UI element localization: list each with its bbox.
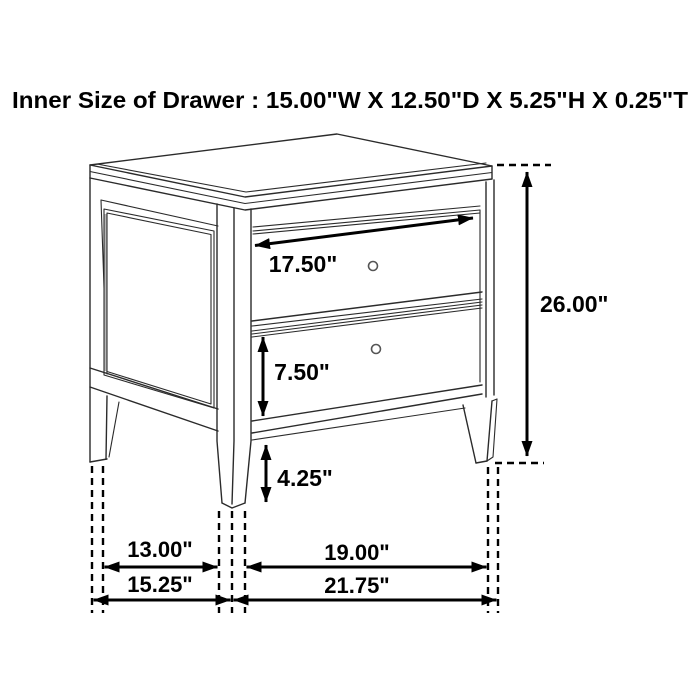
dimension-label-13-00: 13.00" [127,537,192,562]
bottom-rail-lower-edge [252,408,465,440]
dimension-label-19-00: 19.00" [324,540,389,565]
dimension-label-26-00: 26.00" [540,291,608,317]
front-right-leg [463,399,497,463]
front-left-stile-and-leg [217,204,251,508]
back-left-leg [90,396,119,462]
front-left-leg-bottom-edge [222,503,245,508]
front-left-stile-back-edge [217,204,222,503]
dimension-overall-height: 26.00" [527,172,608,456]
nightstand-drawing [90,134,497,508]
dimension-label-7-50: 7.50" [274,359,330,385]
left-bottom-rail-top-edge [90,368,218,409]
dimension-overall-depth: 15.25" [94,572,231,600]
front-right-leg-bottom-edge [476,461,487,463]
bottom-drawer-bottom-edge [252,385,482,421]
bottom-drawer-top-edge-2 [252,305,482,334]
left-top-rail-bottom-edge [101,200,218,226]
dimension-side-leg-clearance: 13.00" [105,537,218,567]
dimension-diagram-page: Inner Size of Drawer : 15.00"W X 12.50"D… [0,0,700,700]
diagram-title: Inner Size of Drawer : 15.00"W X 12.50"D… [12,87,689,113]
dimension-label-17-50: 17.50" [269,251,337,277]
back-left-leg-bottom-edge [90,459,107,462]
dimension-overall-width: 21.75" [234,573,497,600]
dimension-drawer-front-height: 7.50" [263,337,330,416]
dimension-arrow-17-50 [255,218,473,246]
recessed-panel-bevel [107,213,211,404]
dimension-label-15-25: 15.25" [127,572,192,597]
dimension-leg-height: 4.25" [266,445,333,502]
back-left-leg-taper-edge [109,402,119,457]
dimension-label-21-75: 21.75" [324,573,389,598]
front-left-stile-corner-edge [232,208,234,504]
dimension-front-leg-clearance: 19.00" [247,540,487,567]
nightstand-dimension-diagram: Inner Size of Drawer : 15.00"W X 12.50"D… [0,0,700,700]
left-side-panel [90,178,218,462]
front-right-leg-left-edge [463,405,476,463]
dimension-label-4-25: 4.25" [277,465,333,491]
front-right-leg-right-edge [487,401,492,461]
top-drawer-knob [369,262,378,271]
bottom-drawer-knob [372,345,381,354]
tabletop-top-face [90,134,492,197]
tabletop [90,134,492,210]
back-left-leg-inner-edge [106,396,107,459]
bottom-rail-mid-edge [252,394,482,433]
dimension-drawer-front-width: 17.50" [255,218,473,277]
front-left-stile-inner-edge [245,209,251,503]
left-bottom-rail-bottom-edge [90,387,218,431]
